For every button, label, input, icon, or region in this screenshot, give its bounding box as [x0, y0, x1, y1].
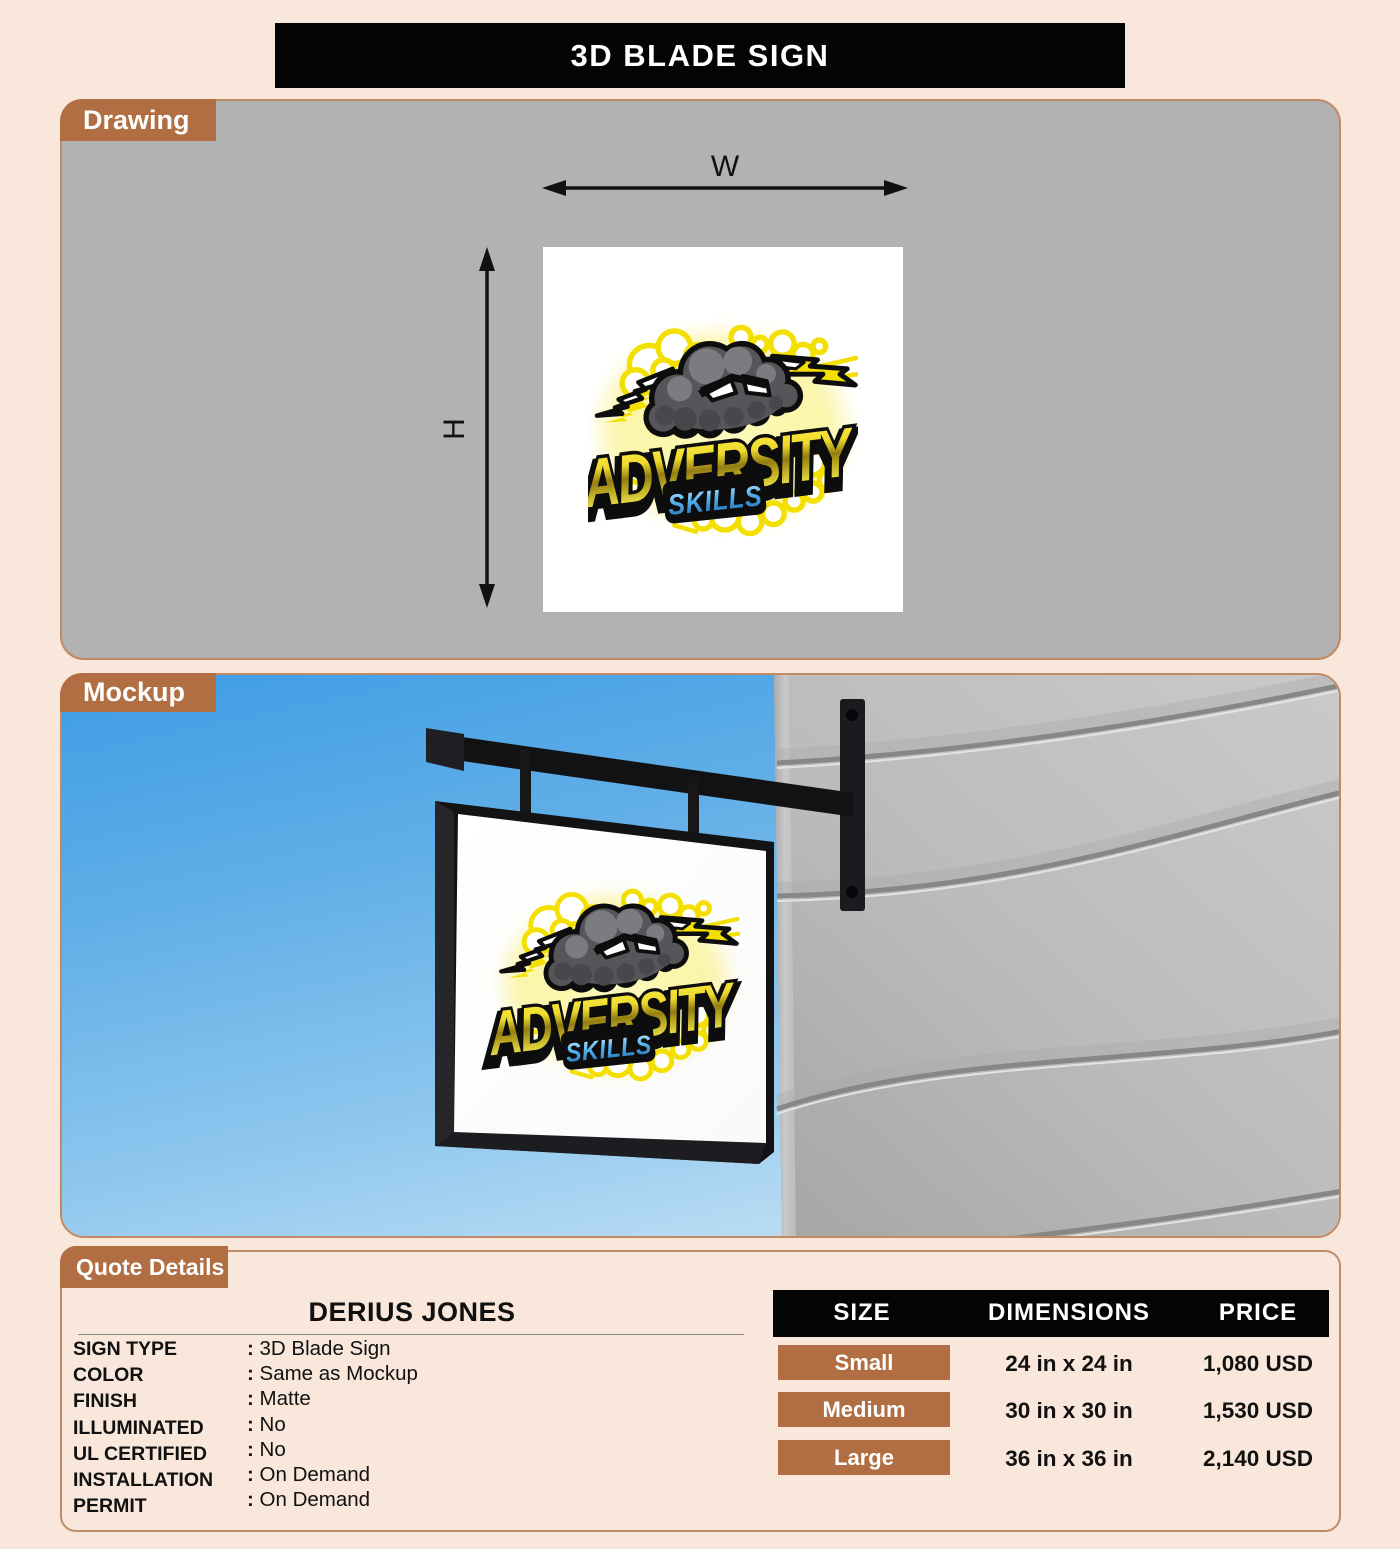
svg-text:W: W [711, 150, 740, 183]
svg-text:H: H [440, 418, 471, 440]
